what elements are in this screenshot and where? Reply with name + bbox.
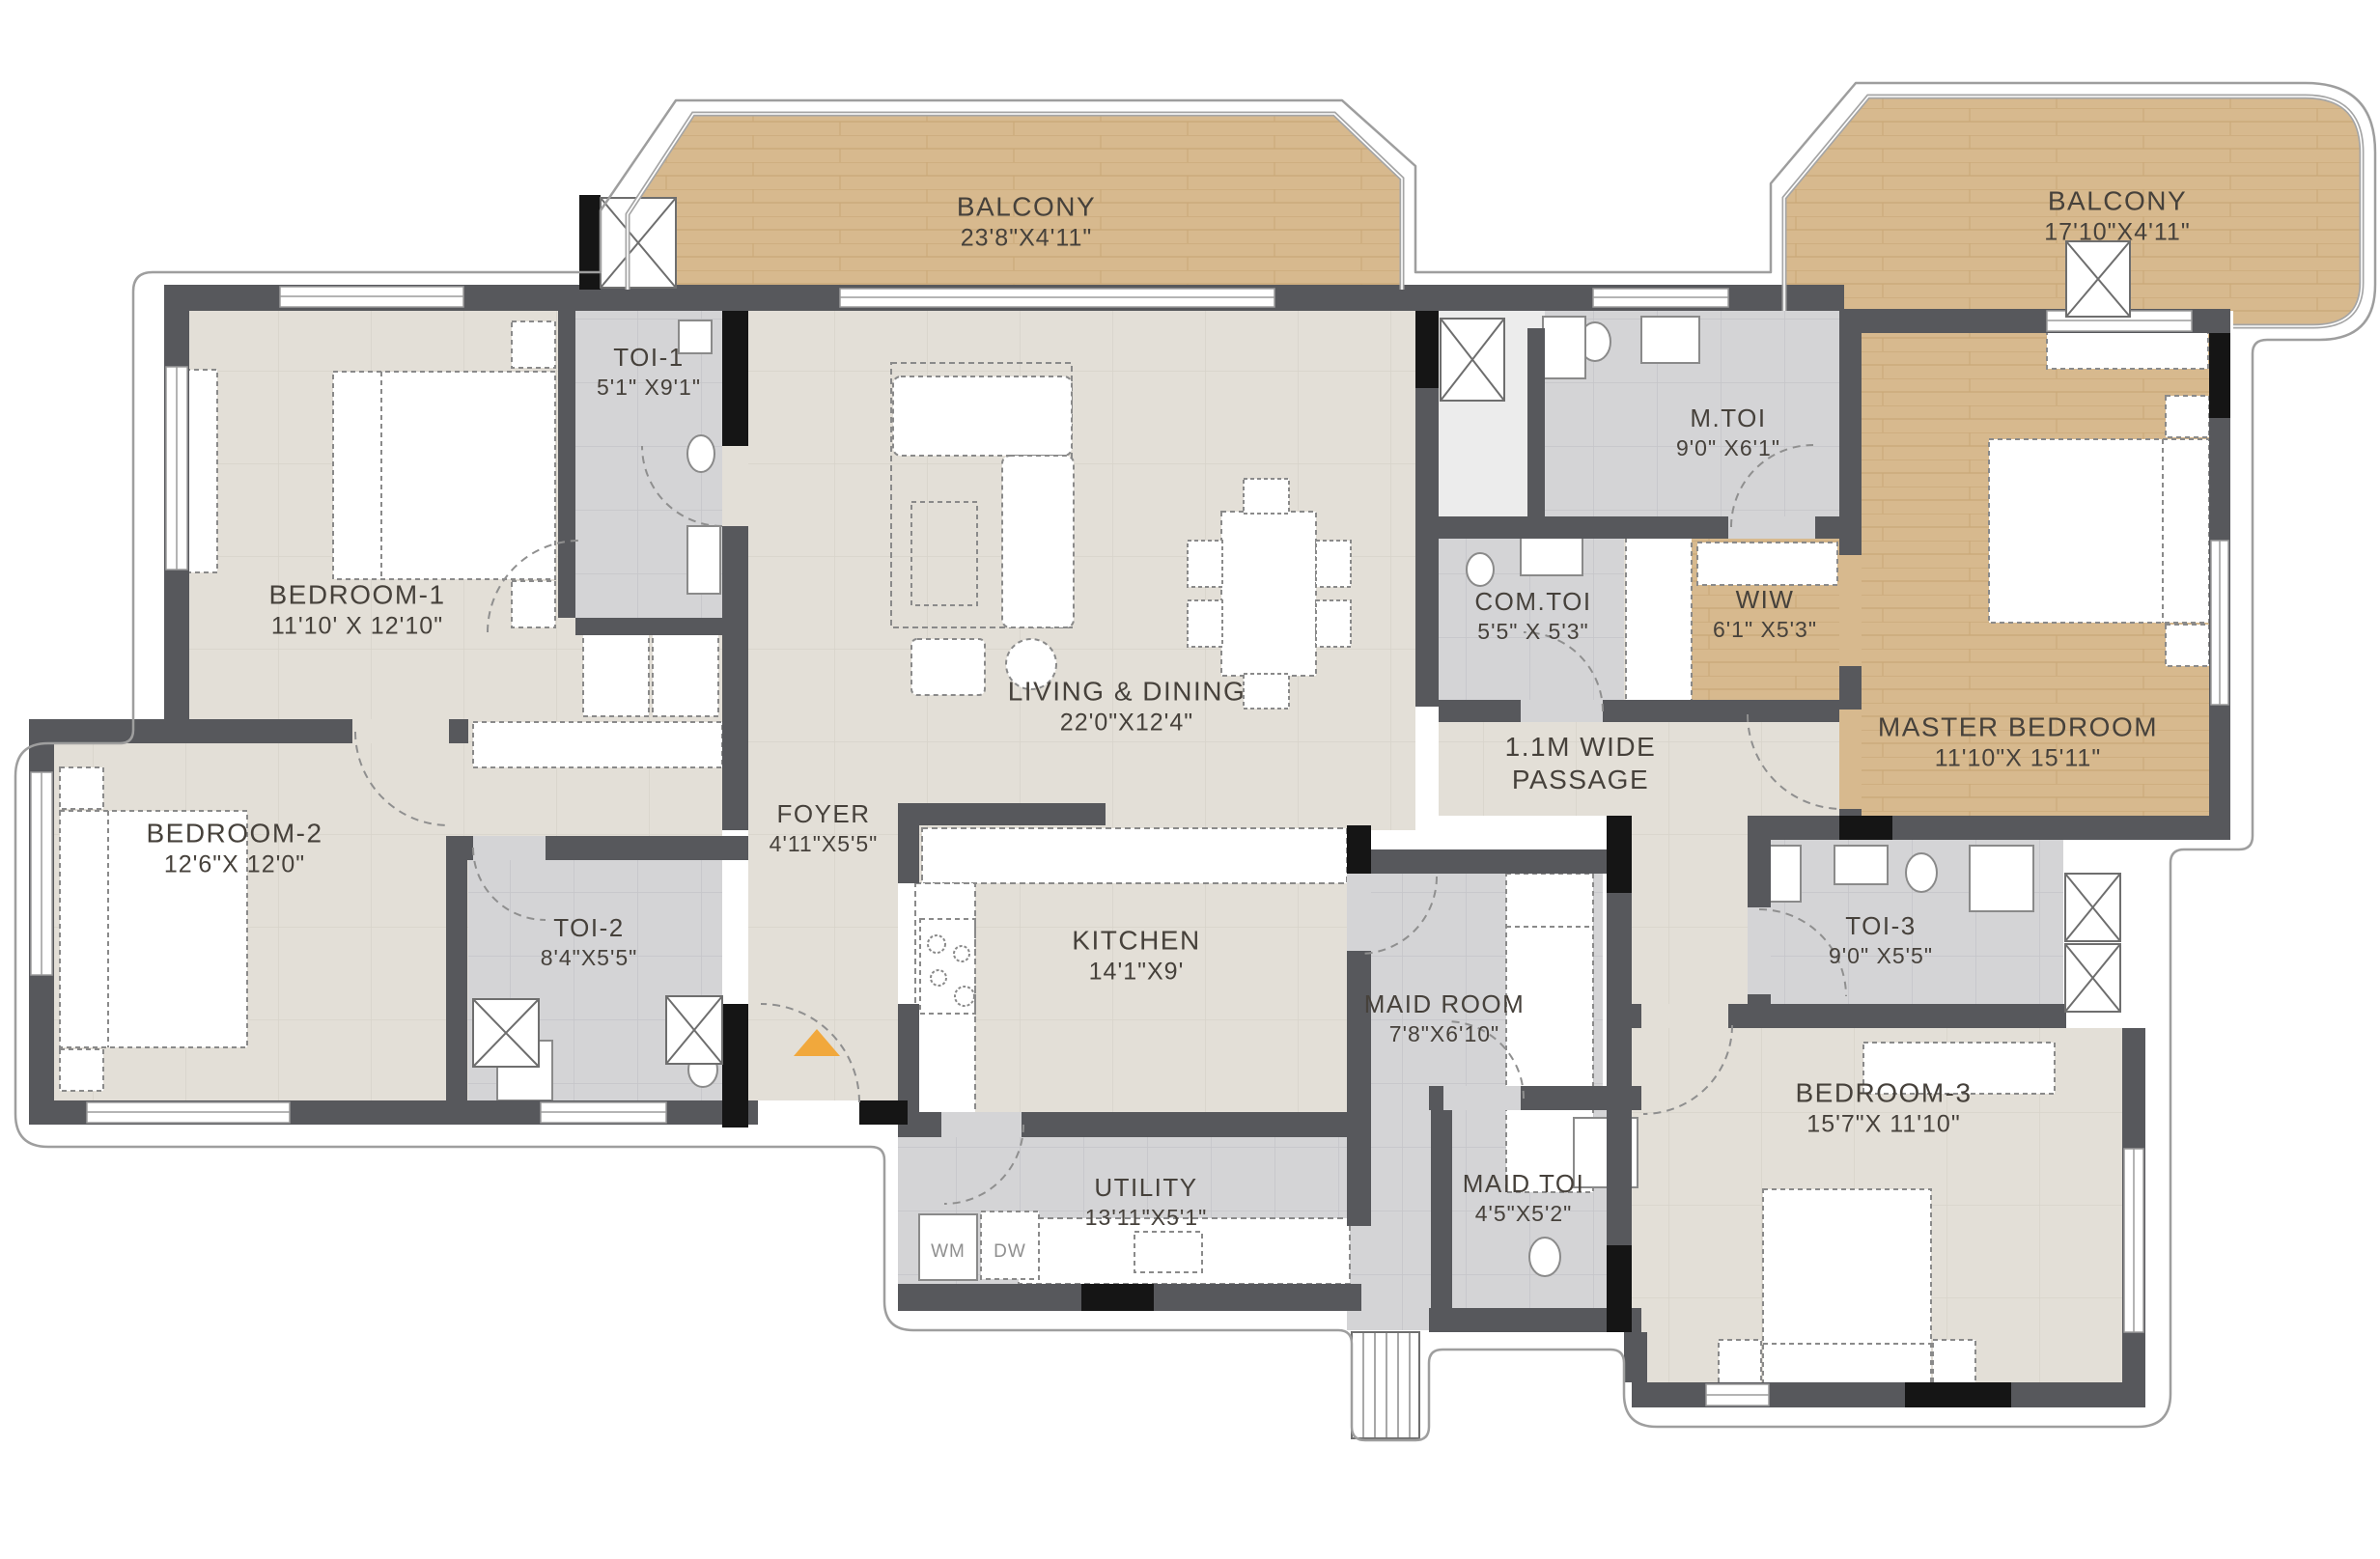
room-dims: 7'8"X6'10" <box>1364 1020 1526 1047</box>
room-label-wiw: WIW 6'1" X5'3" <box>1713 585 1817 643</box>
room-dims: PASSAGE <box>1505 764 1657 796</box>
room-name: BEDROOM-2 <box>146 818 322 850</box>
room-name: BALCONY <box>2044 185 2190 218</box>
room-name: BEDROOM-3 <box>1795 1077 1972 1110</box>
room-dims: 6'1" X5'3" <box>1713 616 1817 643</box>
room-dims: 15'7"X 11'10" <box>1795 1110 1972 1140</box>
floor-plan: BALCONY 23'8"X4'11" BALCONY 17'10"X4'11"… <box>0 0 2380 1559</box>
room-name: MASTER BEDROOM <box>1878 711 2158 744</box>
room-name: BEDROOM-1 <box>268 579 445 612</box>
room-label-bedroom-2: BEDROOM-2 12'6"X 12'0" <box>146 818 322 880</box>
room-name: KITCHEN <box>1072 925 1200 958</box>
room-name: TOI-2 <box>541 913 638 944</box>
room-dims: 5'1" X9'1" <box>597 374 701 401</box>
room-label-toi-2: TOI-2 8'4"X5'5" <box>541 913 638 971</box>
room-label-m-toi: M.TOI 9'0" X6'1" <box>1676 404 1780 461</box>
room-dims: 11'10' X 12'10" <box>268 612 445 642</box>
room-label-passage: 1.1M WIDE PASSAGE <box>1505 731 1657 796</box>
room-name: BALCONY <box>957 191 1096 224</box>
room-dims: 8'4"X5'5" <box>541 944 638 971</box>
room-dims: 4'5"X5'2" <box>1463 1200 1585 1227</box>
room-label-utility: UTILITY 13'11"X5'1" <box>1085 1173 1208 1231</box>
floorplan-canvas <box>0 0 2380 1559</box>
room-label-maid-room: MAID ROOM 7'8"X6'10" <box>1364 989 1526 1047</box>
washing-machine-label: WM <box>931 1241 966 1263</box>
room-dims: 13'11"X5'1" <box>1085 1204 1208 1231</box>
room-name: TOI-3 <box>1829 911 1933 942</box>
room-dims: 17'10"X4'11" <box>2044 218 2190 248</box>
room-label-balcony-1: BALCONY 23'8"X4'11" <box>957 191 1096 254</box>
room-dims: 11'10"X 15'11" <box>1878 744 2158 774</box>
room-dims: 9'0" X6'1" <box>1676 434 1780 461</box>
room-dims: 14'1"X9' <box>1072 958 1200 988</box>
room-name: FOYER <box>770 799 879 830</box>
room-label-kitchen: KITCHEN 14'1"X9' <box>1072 925 1200 988</box>
room-name: COM.TOI <box>1474 587 1591 618</box>
room-label-living-dining: LIVING & DINING 22'0"X12'4" <box>1008 676 1246 738</box>
room-dims: 9'0" X5'5" <box>1829 942 1933 969</box>
room-label-bedroom-3: BEDROOM-3 15'7"X 11'10" <box>1795 1077 1972 1140</box>
room-dims: 4'11"X5'5" <box>770 830 879 857</box>
room-name: MAID TOI <box>1463 1169 1585 1200</box>
room-name: MAID ROOM <box>1364 989 1526 1020</box>
room-label-bedroom-1: BEDROOM-1 11'10' X 12'10" <box>268 579 445 642</box>
room-name: M.TOI <box>1676 404 1780 434</box>
room-name: TOI-1 <box>597 343 701 374</box>
room-label-toi-1: TOI-1 5'1" X9'1" <box>597 343 701 401</box>
room-name: 1.1M WIDE <box>1505 731 1657 764</box>
room-dims: 12'6"X 12'0" <box>146 850 322 880</box>
room-label-balcony-2: BALCONY 17'10"X4'11" <box>2044 185 2190 248</box>
room-label-master-bedroom: MASTER BEDROOM 11'10"X 15'11" <box>1878 711 2158 774</box>
room-label-com-toi: COM.TOI 5'5" X 5'3" <box>1474 587 1591 645</box>
room-dims: 22'0"X12'4" <box>1008 709 1246 738</box>
room-name: UTILITY <box>1085 1173 1208 1204</box>
dishwasher-label: DW <box>994 1241 1026 1263</box>
room-label-toi-3: TOI-3 9'0" X5'5" <box>1829 911 1933 969</box>
room-label-maid-toi: MAID TOI 4'5"X5'2" <box>1463 1169 1585 1227</box>
room-name: WIW <box>1713 585 1817 616</box>
room-label-foyer: FOYER 4'11"X5'5" <box>770 799 879 857</box>
room-dims: 23'8"X4'11" <box>957 224 1096 254</box>
room-name: LIVING & DINING <box>1008 676 1246 709</box>
room-dims: 5'5" X 5'3" <box>1474 618 1591 645</box>
